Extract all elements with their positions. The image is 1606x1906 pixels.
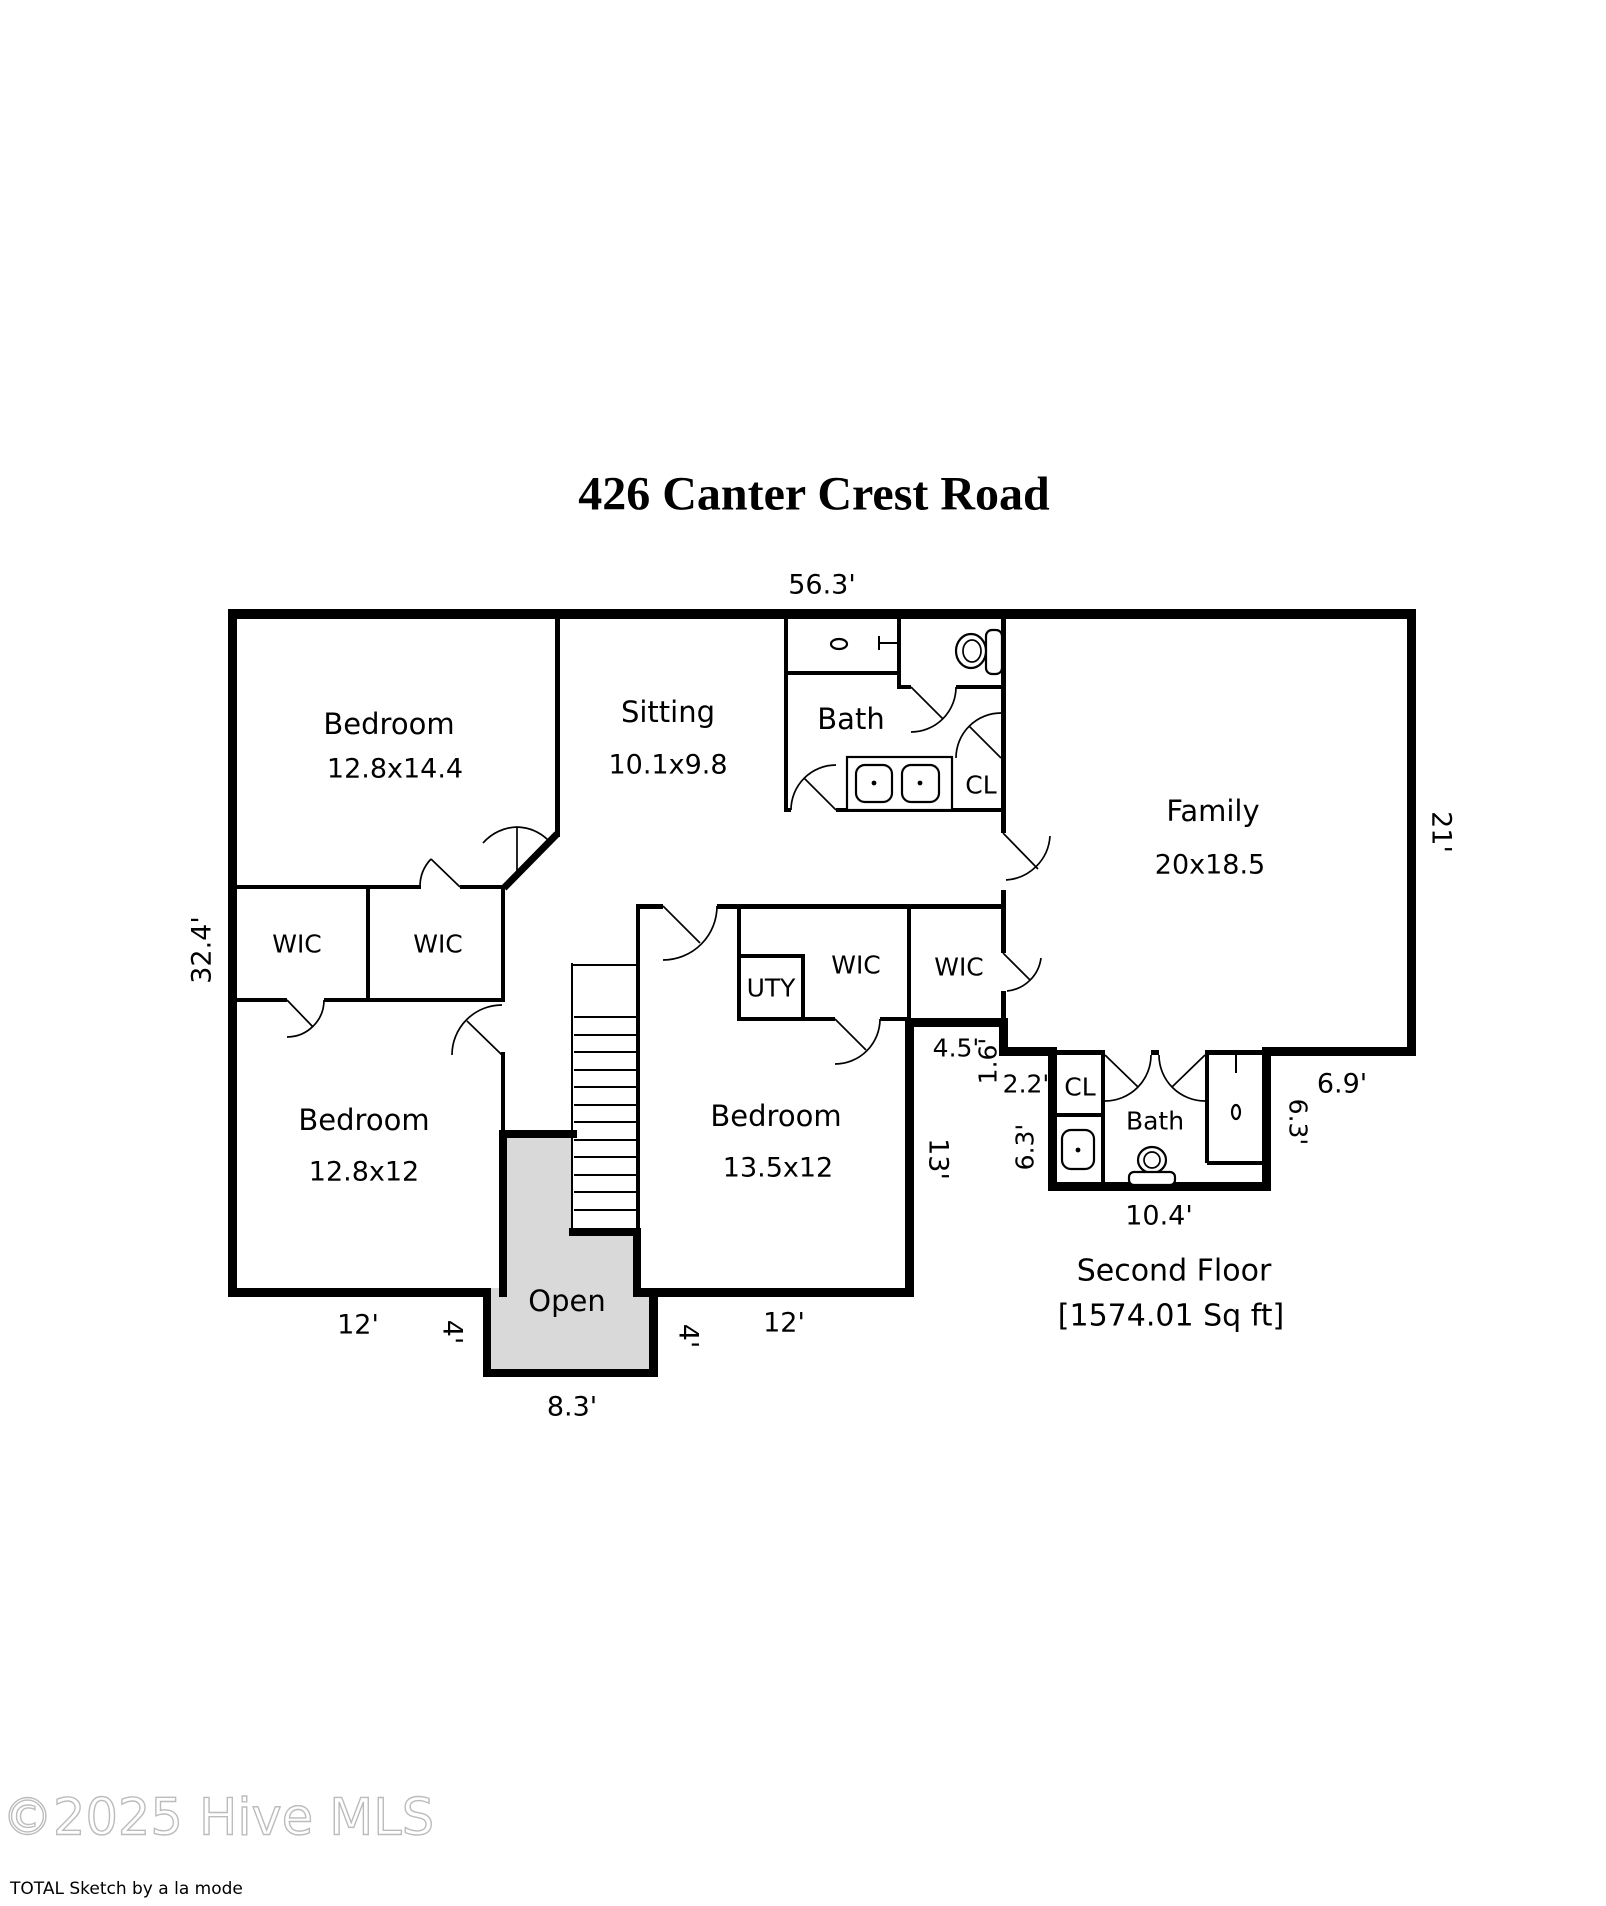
room-dims-bedroom3: 13.5x12: [723, 1153, 833, 1184]
dim-12-right: 12': [763, 1308, 805, 1339]
door-wic1: [287, 1000, 324, 1037]
door-cl-upper: [956, 713, 1001, 758]
door-bath-lower-1: [1105, 1055, 1151, 1101]
room-label-bath-lower: Bath: [1126, 1107, 1184, 1136]
tub-fixture: [831, 636, 897, 650]
dim-13: 13': [923, 1138, 954, 1180]
dim-6-9: 6.9': [1317, 1069, 1367, 1100]
door-bath-lower-2: [1159, 1055, 1205, 1101]
dim-8-3: 8.3': [547, 1392, 597, 1423]
dim-4-left: 4': [437, 1320, 468, 1345]
room-label-open: Open: [528, 1284, 605, 1318]
room-label-bedroom3: Bedroom: [710, 1099, 841, 1133]
page-title: 426 Canter Crest Road: [578, 468, 1050, 521]
door-family-upper: [1003, 833, 1050, 880]
room-dims-family: 20x18.5: [1155, 850, 1265, 881]
door-arcs: [287, 687, 1205, 1101]
sink-lower-fixture: [1062, 1130, 1094, 1169]
dim-4-5: 4.5': [933, 1034, 980, 1063]
room-dims-bedroom1: 12.8x14.4: [327, 754, 463, 785]
room-label-bedroom2: Bedroom: [298, 1103, 429, 1137]
dim-1-6: 1.6': [974, 1038, 1003, 1085]
dim-6-3-left: 6.3': [1011, 1124, 1040, 1171]
room-label-wic-left1: WIC: [272, 930, 322, 959]
door-bedroom3: [663, 906, 717, 960]
room-label-wic-left2: WIC: [413, 930, 463, 959]
room-label-bath-upper: Bath: [817, 702, 884, 736]
door-wic-mid: [835, 1019, 880, 1064]
room-label-bedroom1: Bedroom: [323, 707, 454, 741]
dim-right: 21': [1426, 811, 1457, 853]
dim-10-4: 10.4': [1125, 1201, 1193, 1232]
dim-left: 32.4': [187, 916, 218, 984]
room-label-sitting: Sitting: [621, 695, 715, 729]
floor-plan-sketch: 426 Canter Crest Road: [0, 0, 1606, 1906]
dim-top: 56.3': [788, 570, 856, 601]
floor-area: [1574.01 Sq ft]: [1058, 1299, 1284, 1334]
room-label-cl-upper: CL: [965, 771, 996, 800]
room-dims-bedroom2: 12.8x12: [309, 1157, 419, 1188]
room-label-family: Family: [1166, 794, 1259, 828]
room-label-wic-mid: WIC: [831, 951, 881, 980]
toilet-upper-fixture: [956, 630, 1002, 674]
staircase: [572, 963, 638, 1228]
double-sink-vanity-fixture: [847, 757, 952, 810]
room-label-wic-right: WIC: [934, 953, 984, 982]
dim-4-right: 4': [673, 1324, 704, 1349]
room-label-cl-lower: CL: [1064, 1073, 1095, 1102]
door-watercloset: [911, 687, 956, 732]
door-bath-upper: [791, 765, 836, 810]
room-dims-sitting: 10.1x9.8: [608, 750, 727, 781]
dim-2-2: 2.2': [1003, 1070, 1050, 1099]
toilet-lower-fixture: [1129, 1147, 1175, 1185]
door-wic2: [420, 859, 460, 887]
floor-name: Second Floor: [1077, 1254, 1272, 1289]
door-family-lower: [1003, 953, 1041, 991]
shower-fixture: [1232, 1055, 1240, 1119]
sketch-credit: TOTAL Sketch by a la mode: [9, 1879, 243, 1899]
dim-6-3-right: 6.3': [1284, 1099, 1313, 1146]
door-bedroom2: [452, 1005, 502, 1055]
mls-watermark: ©2025 Hive MLS: [2, 1789, 434, 1848]
dim-12-left: 12': [337, 1310, 379, 1341]
room-label-uty: UTY: [747, 974, 797, 1003]
open-stairwell-area: [491, 1138, 650, 1369]
